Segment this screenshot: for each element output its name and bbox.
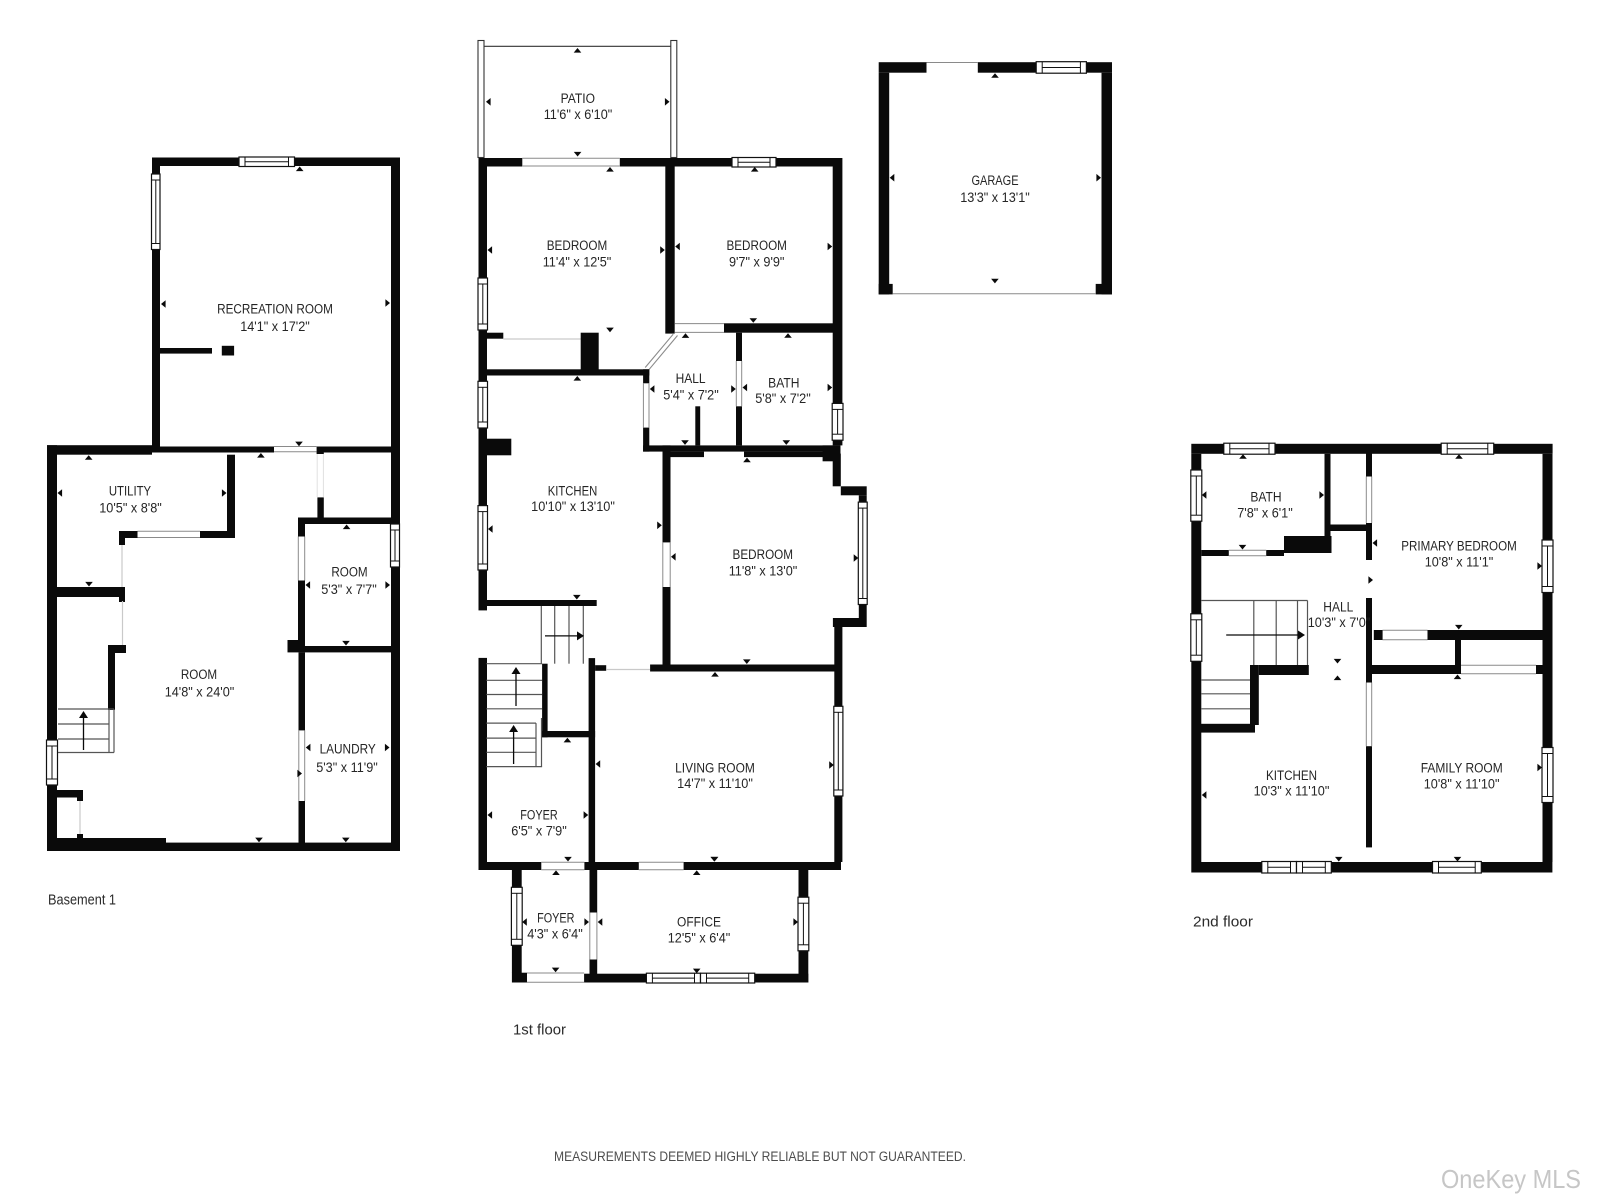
svg-text:1st floor: 1st floor xyxy=(513,1023,566,1039)
svg-text:2nd floor: 2nd floor xyxy=(1193,915,1253,931)
svg-text:12'5" x 6'4": 12'5" x 6'4" xyxy=(668,931,731,946)
svg-text:PATIO: PATIO xyxy=(561,91,595,106)
svg-text:FAMILY ROOM: FAMILY ROOM xyxy=(1421,761,1503,776)
svg-text:11'6" x 6'10": 11'6" x 6'10" xyxy=(544,107,613,122)
svg-text:UTILITY: UTILITY xyxy=(109,484,151,499)
svg-text:10'3" x 11'10": 10'3" x 11'10" xyxy=(1254,784,1330,799)
svg-text:10'8" x 11'10": 10'8" x 11'10" xyxy=(1424,777,1500,792)
svg-text:5'3" x 7'7": 5'3" x 7'7" xyxy=(321,582,377,597)
svg-text:13'3" x 13'1": 13'3" x 13'1" xyxy=(960,190,1030,205)
svg-text:14'1" x 17'2": 14'1" x 17'2" xyxy=(240,319,310,334)
svg-text:MEASUREMENTS DEEMED HIGHLY REL: MEASUREMENTS DEEMED HIGHLY RELIABLE BUT … xyxy=(554,1149,966,1164)
svg-text:11'8" x 13'0": 11'8" x 13'0" xyxy=(729,564,798,579)
svg-text:10'5" x 8'8": 10'5" x 8'8" xyxy=(99,501,162,516)
svg-text:FOYER: FOYER xyxy=(520,808,558,823)
svg-text:7'8" x 6'1": 7'8" x 6'1" xyxy=(1237,505,1293,520)
svg-text:10'10" x 13'10": 10'10" x 13'10" xyxy=(531,499,615,514)
svg-text:BATH: BATH xyxy=(1250,489,1281,504)
svg-text:KITCHEN: KITCHEN xyxy=(1266,768,1317,783)
svg-text:HALL: HALL xyxy=(676,371,706,386)
svg-text:GARAGE: GARAGE xyxy=(971,173,1018,188)
svg-text:BEDROOM: BEDROOM xyxy=(726,238,787,253)
svg-text:BEDROOM: BEDROOM xyxy=(733,547,794,562)
svg-text:BATH: BATH xyxy=(768,376,799,391)
svg-text:FOYER: FOYER xyxy=(537,911,575,926)
svg-text:OneKey MLS: OneKey MLS xyxy=(1441,1164,1581,1194)
svg-text:OFFICE: OFFICE xyxy=(677,915,721,930)
svg-text:PRIMARY BEDROOM: PRIMARY BEDROOM xyxy=(1401,538,1517,553)
svg-text:KITCHEN: KITCHEN xyxy=(548,484,598,499)
svg-text:LIVING ROOM: LIVING ROOM xyxy=(675,760,755,775)
svg-text:ROOM: ROOM xyxy=(181,667,217,682)
svg-text:5'4" x 7'2": 5'4" x 7'2" xyxy=(663,387,719,402)
svg-text:5'8" x 7'2": 5'8" x 7'2" xyxy=(755,391,811,406)
svg-text:10'3" x 7'0": 10'3" x 7'0" xyxy=(1308,615,1371,630)
svg-text:ROOM: ROOM xyxy=(331,565,367,580)
svg-text:RECREATION ROOM: RECREATION ROOM xyxy=(217,302,333,317)
svg-text:BEDROOM: BEDROOM xyxy=(547,238,608,253)
svg-text:6'5" x 7'9": 6'5" x 7'9" xyxy=(511,824,567,839)
svg-text:LAUNDRY: LAUNDRY xyxy=(320,742,376,757)
svg-text:11'4" x 12'5": 11'4" x 12'5" xyxy=(543,255,612,270)
svg-text:14'7" x 11'10": 14'7" x 11'10" xyxy=(677,776,753,791)
svg-text:4'3" x 6'4": 4'3" x 6'4" xyxy=(527,927,583,942)
svg-text:HALL: HALL xyxy=(1323,599,1353,614)
svg-text:9'7" x 9'9": 9'7" x 9'9" xyxy=(729,255,785,270)
svg-text:14'8" x 24'0": 14'8" x 24'0" xyxy=(165,685,235,700)
svg-text:Basement 1: Basement 1 xyxy=(48,893,116,909)
svg-text:5'3" x 11'9": 5'3" x 11'9" xyxy=(316,760,378,775)
svg-text:10'8" x 11'1": 10'8" x 11'1" xyxy=(1425,554,1494,569)
